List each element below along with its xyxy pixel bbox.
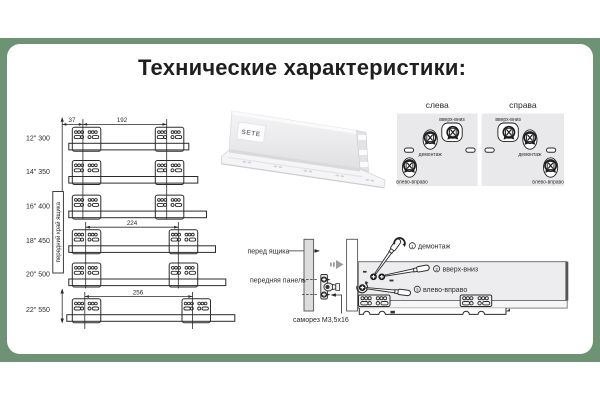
svg-text:18" 450: 18" 450	[26, 238, 50, 245]
svg-text:демонтаж: демонтаж	[419, 152, 443, 158]
svg-text:20" 500: 20" 500	[26, 271, 50, 278]
svg-text:22" 550: 22" 550	[26, 307, 50, 314]
svg-text:вверх-вниз: вверх-вниз	[443, 267, 479, 274]
svg-text:16" 400: 16" 400	[26, 203, 50, 210]
svg-text:демонтаж: демонтаж	[418, 244, 451, 251]
svg-text:14" 350: 14" 350	[26, 169, 50, 176]
svg-text:192: 192	[117, 117, 128, 124]
svg-text:224: 224	[127, 220, 138, 227]
svg-text:вверх-вниз: вверх-вниз	[495, 117, 521, 123]
svg-text:передняя панель: передняя панель	[250, 278, 306, 285]
svg-text:3: 3	[416, 287, 419, 292]
svg-text:влево-вправо: влево-вправо	[532, 180, 564, 186]
svg-text:12" 300: 12" 300	[26, 136, 50, 143]
svg-text:влево-вправо: влево-вправо	[396, 180, 428, 186]
svg-text:справа: справа	[509, 100, 537, 110]
svg-text:перед ящика: перед ящика	[248, 249, 290, 256]
svg-text:256: 256	[133, 289, 144, 296]
svg-text:1: 1	[411, 244, 414, 249]
svg-text:2: 2	[435, 267, 438, 272]
svg-text:влево-вправо: влево-вправо	[423, 287, 467, 294]
svg-text:передний край ящика: передний край ящика	[55, 201, 62, 262]
svg-text:слева: слева	[426, 100, 449, 110]
svg-text:вверх-вниз: вверх-вниз	[439, 117, 465, 123]
svg-text:37: 37	[69, 117, 76, 124]
svg-text:демонтаж: демонтаж	[518, 152, 542, 158]
svg-text:саморез М3,5х16: саморез М3,5х16	[293, 317, 349, 324]
